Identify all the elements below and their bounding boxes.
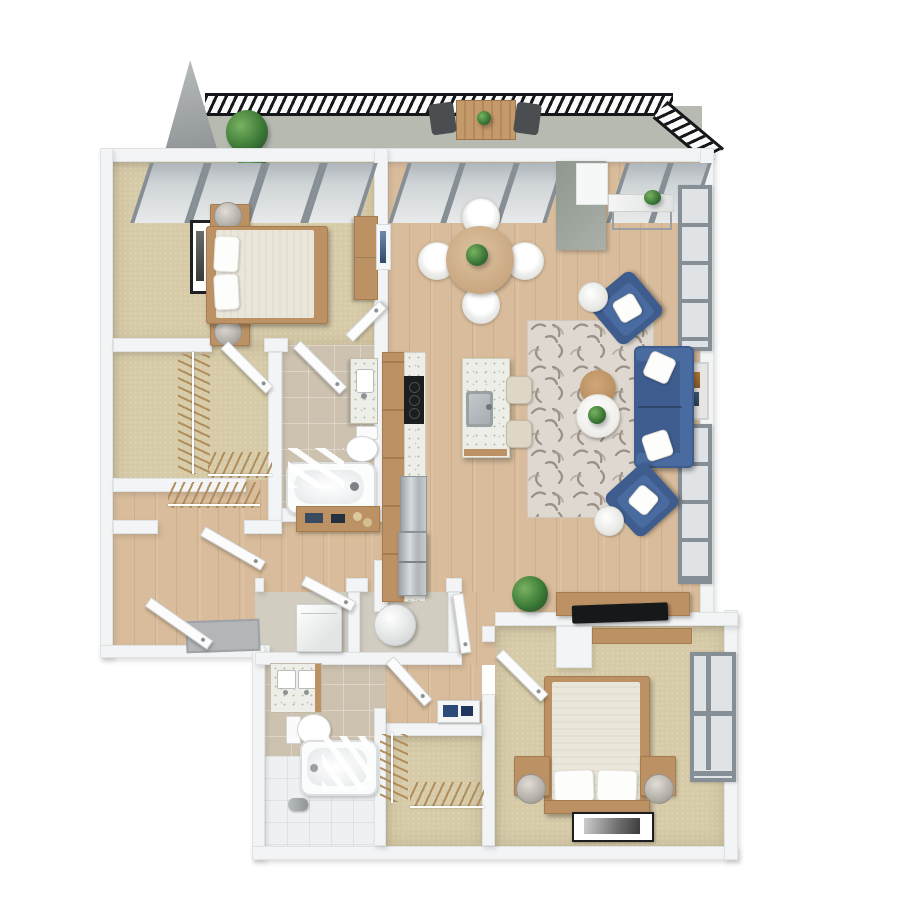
vanity-faucet <box>283 690 288 695</box>
balcony-chair-left <box>428 101 457 135</box>
dresser-item <box>331 514 345 523</box>
fridge-door-split <box>399 561 426 563</box>
kitchen-refrigerator <box>398 532 427 596</box>
wall-left-lower <box>252 645 265 860</box>
dresser-divider <box>355 257 377 258</box>
kitchen-cooktop <box>404 376 424 424</box>
console-table-top <box>608 194 674 212</box>
wall-bedroom2-left-a <box>482 626 495 642</box>
dining-table-plant <box>466 244 488 266</box>
tub-faucet <box>310 764 318 772</box>
island-sink <box>466 391 493 427</box>
bedroom2-shelf-header <box>592 628 692 644</box>
bar-stool <box>506 376 532 404</box>
vanity-wood-edge <box>315 664 321 712</box>
wall-bedroom2-duct <box>556 626 592 668</box>
wall-hall-top-b <box>244 520 282 534</box>
dresser-knob <box>353 512 362 521</box>
dresser-item <box>305 513 323 523</box>
wall-left <box>100 148 113 658</box>
sofa <box>634 346 694 468</box>
side-table-south <box>594 506 624 536</box>
sink-faucet <box>486 404 492 410</box>
wall-bedroom1-bottom-a <box>113 338 212 352</box>
closet2-hangers-row <box>410 782 484 808</box>
kitchen-dishwasher <box>400 476 427 532</box>
bedroom2-floor-art <box>572 812 654 842</box>
wall-bedroom2-left-b <box>482 694 495 846</box>
wall-hall-top-a <box>113 520 158 534</box>
wall-top <box>100 148 712 162</box>
nook-floor-art <box>437 700 480 723</box>
sofa-cushion-split <box>638 406 682 408</box>
bedroom2-pillow <box>553 769 594 802</box>
dining-side-wall-art <box>376 224 391 270</box>
wall-laundry-top-a <box>255 578 264 592</box>
art-blue-streak <box>380 231 386 263</box>
art-photo <box>584 818 640 834</box>
art-blue-block <box>443 705 458 717</box>
bathroom1-vanity <box>350 358 378 424</box>
closet-rail-row <box>208 474 272 476</box>
wall-laundry-top-c <box>446 578 462 592</box>
floor-plan-render <box>0 0 900 900</box>
bathroom2-double-vanity <box>270 663 322 713</box>
washer-lid-line <box>301 613 337 614</box>
closet-rail-vertical <box>192 352 194 474</box>
bedroom1-pillow <box>213 235 240 272</box>
island-wood-base <box>464 449 507 456</box>
closet2-rail-vertical <box>391 733 393 803</box>
art-photo <box>196 231 204 281</box>
console-plant <box>644 190 661 205</box>
vanity-sink <box>356 369 374 393</box>
bathroom1-toilet-bowl <box>346 436 378 462</box>
tub-drain <box>350 482 359 491</box>
dryer <box>374 604 416 646</box>
window-mullion <box>706 656 711 770</box>
burner <box>409 395 420 406</box>
wall-laundry-top-b <box>346 578 368 592</box>
side-table-north <box>578 282 608 312</box>
bedroom2-lamp-left <box>516 774 546 804</box>
balcony-chair-right <box>513 101 542 135</box>
vanity-faucet <box>304 690 309 695</box>
living-floor-plant <box>512 576 548 612</box>
bedroom2-lamp-right <box>644 774 674 804</box>
burner <box>409 408 420 419</box>
closet-alcove-rail <box>168 504 260 506</box>
bar-stool <box>506 420 532 448</box>
kitchen-island <box>462 358 510 458</box>
living-right-window-upper <box>678 185 712 351</box>
wall-closet-right <box>268 352 282 522</box>
dresser-knob <box>363 518 372 527</box>
bedroom1-dresser <box>354 216 378 300</box>
vanity-faucet <box>361 393 367 399</box>
balcony-table-plant <box>477 111 491 125</box>
wall-bedroom1-bottom-b <box>264 338 288 352</box>
hall-dresser <box>296 506 380 532</box>
bathroom1-shower-screen <box>288 448 344 488</box>
vanity-sink <box>277 670 296 689</box>
wall-bottom <box>252 846 738 860</box>
towel-fixture <box>288 798 308 811</box>
column-white-panel <box>576 163 608 205</box>
coffee-table-plant <box>588 406 606 424</box>
art-blue-block <box>461 706 473 716</box>
bedroom1-pillow <box>213 273 240 310</box>
tv <box>572 602 669 623</box>
bathroom2-shower-glass <box>322 736 372 790</box>
closet-hangers-vertical <box>178 354 210 474</box>
closet2-rail-row <box>410 806 484 808</box>
washer <box>296 604 342 652</box>
closet2-hangers-vertical <box>380 734 408 802</box>
bedroom2-window <box>690 652 736 782</box>
burner <box>409 382 420 393</box>
bedroom2-pillow <box>596 769 637 802</box>
